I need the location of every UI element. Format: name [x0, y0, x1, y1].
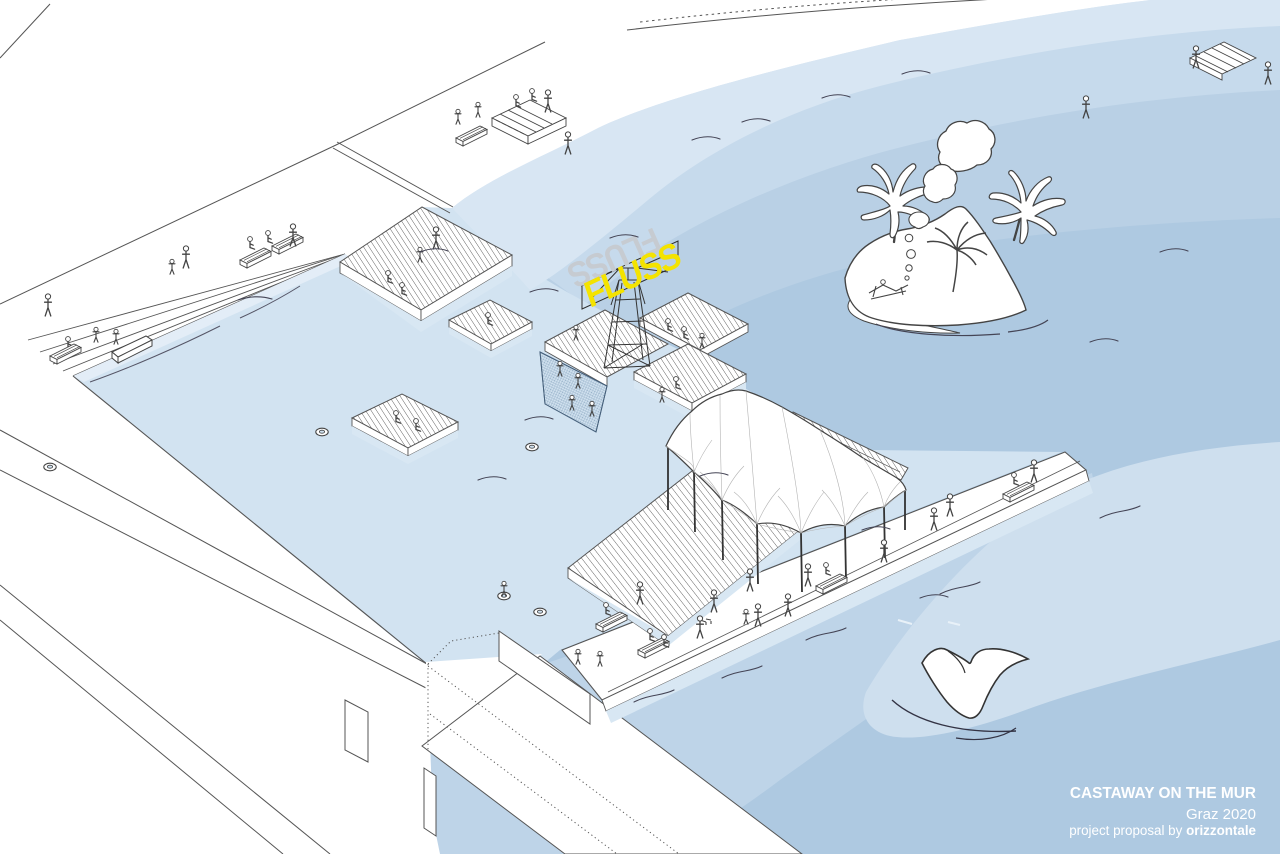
- svg-text:Graz 2020: Graz 2020: [1186, 806, 1256, 823]
- svg-text:CASTAWAY ON THE MUR: CASTAWAY ON THE MUR: [1070, 785, 1256, 802]
- svg-text:project proposal by orizzontal: project proposal by orizzontale: [1069, 823, 1256, 838]
